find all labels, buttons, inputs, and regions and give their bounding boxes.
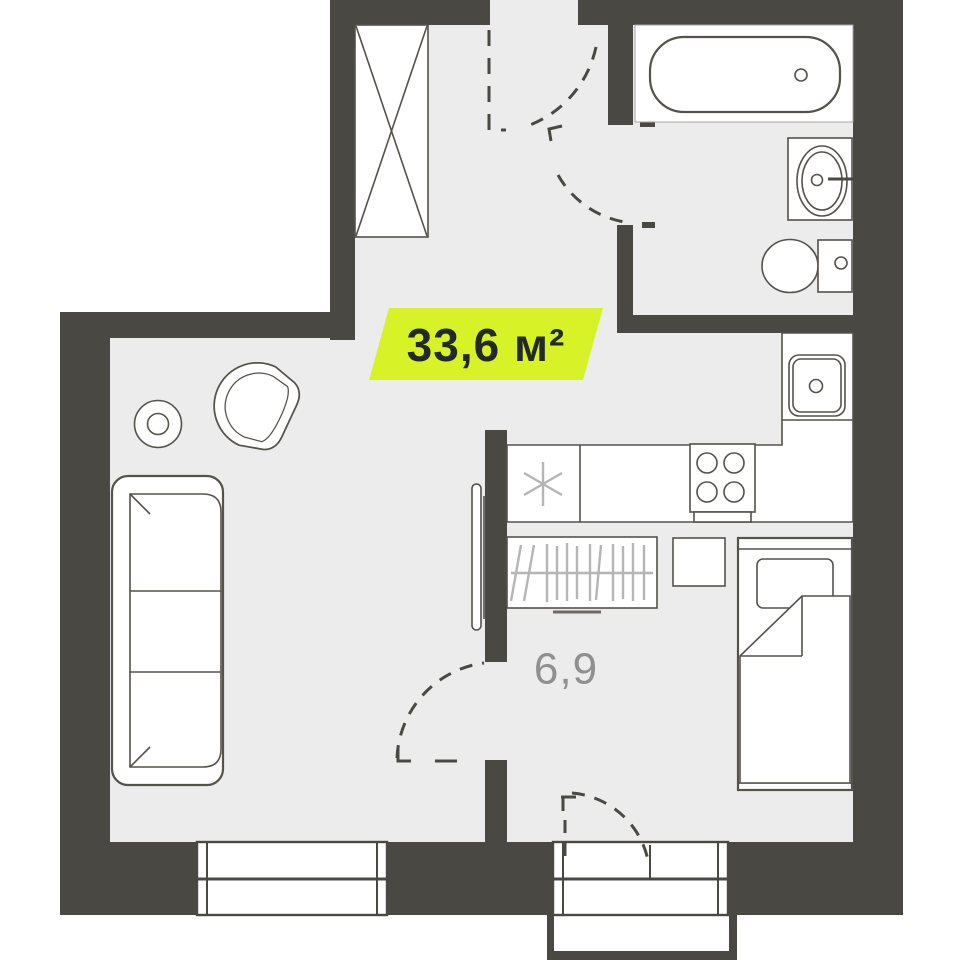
wall-top-right-segment	[578, 0, 903, 25]
wall-partition-upper	[485, 430, 507, 662]
nightstand-icon	[673, 538, 725, 586]
wall-partition-lower	[485, 760, 507, 842]
bathtub-icon	[650, 37, 840, 112]
wall-bathroom-left	[617, 225, 633, 317]
area-badge-text: 33,6 м²	[407, 319, 566, 371]
wall-door-stub-bottom	[642, 222, 655, 228]
wall-bathroom-bottom	[617, 315, 853, 333]
wall-bathroom-pillar	[608, 25, 633, 125]
bathtub-drain	[795, 69, 807, 81]
wall-bottom-left	[60, 842, 197, 915]
wall-hall-left-column	[330, 0, 355, 340]
wall-bottom-middle	[387, 842, 553, 915]
tv-panel-icon	[472, 484, 481, 630]
floor-plan-svg: 33,6 м² 6,9	[0, 0, 960, 960]
sofa-icon	[112, 476, 223, 785]
balcony-wall-bottom	[547, 951, 737, 960]
stove-front-panel	[694, 512, 751, 522]
floor-plan-page: 33,6 м² 6,9	[0, 0, 960, 960]
room-area-label: 6,9	[534, 645, 598, 694]
wall-right	[853, 0, 903, 915]
side-table-icon	[135, 401, 182, 448]
wall-left	[60, 312, 110, 915]
floor-entry-gap	[490, 0, 578, 25]
washbasin-faucet-dot	[812, 175, 823, 186]
toilet-bowl	[762, 240, 818, 293]
stove-icon	[690, 444, 755, 512]
